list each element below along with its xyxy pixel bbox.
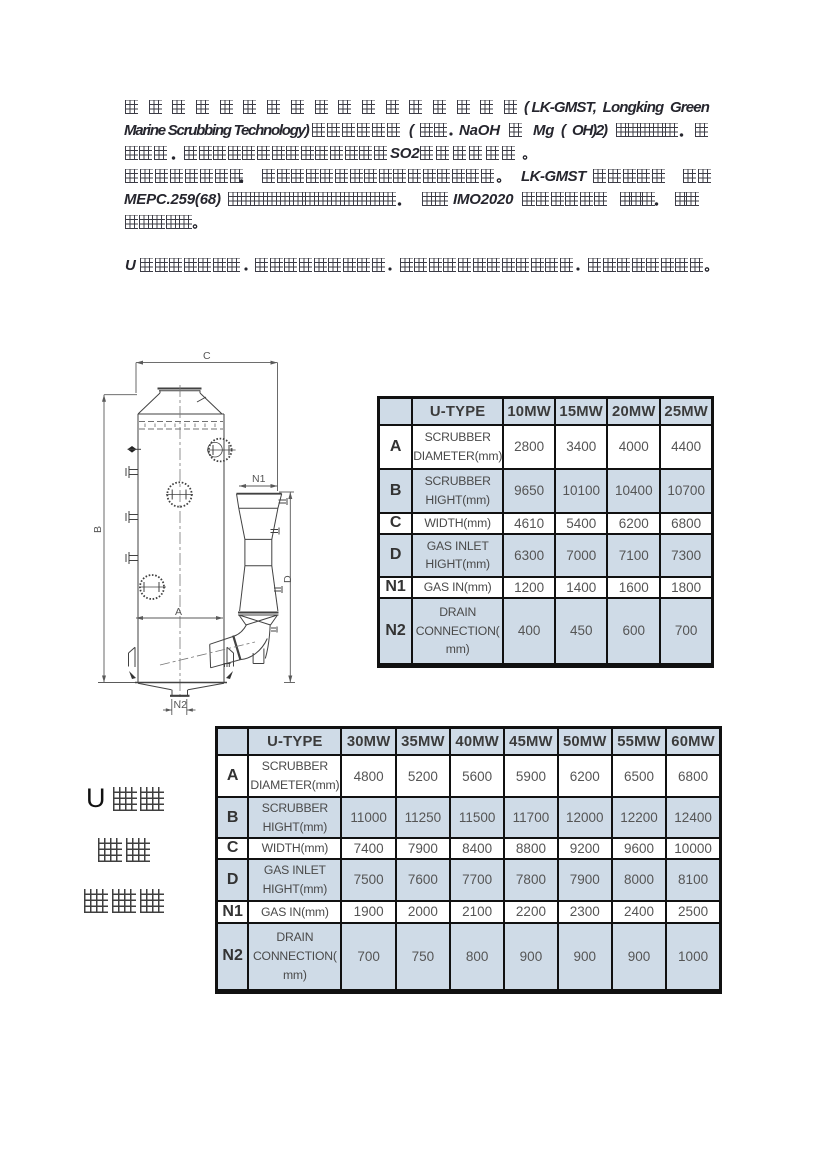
svg-text:A: A (175, 606, 182, 618)
svg-text:D: D (282, 575, 294, 583)
svg-text:C: C (203, 350, 211, 362)
svg-text:B: B (92, 526, 104, 533)
svg-text:N1: N1 (252, 473, 266, 485)
svg-text:N2: N2 (174, 699, 188, 711)
